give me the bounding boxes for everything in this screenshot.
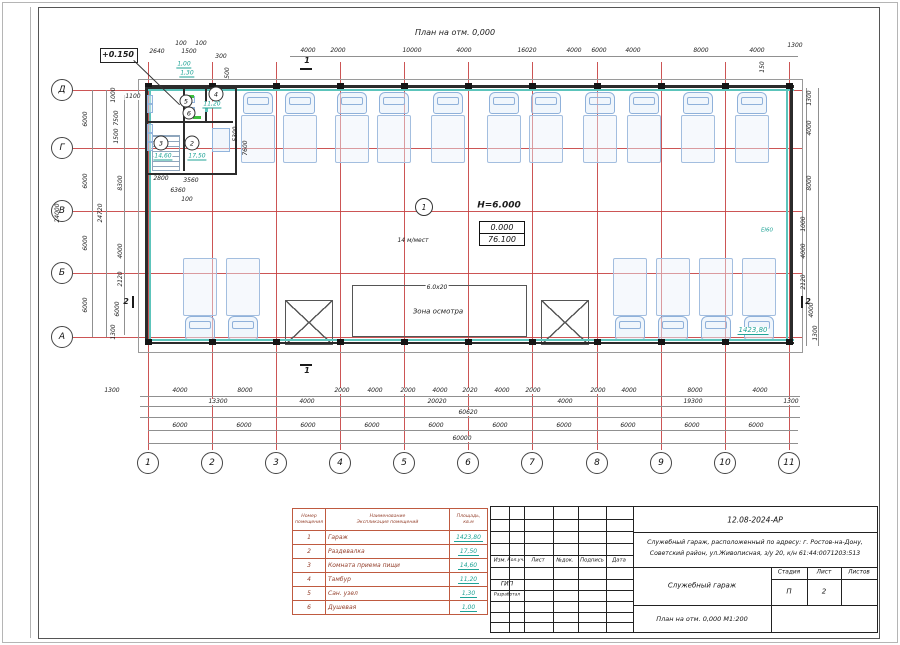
wall-accent <box>145 89 794 91</box>
room-num: 3 <box>293 559 326 573</box>
stamp-line <box>491 622 633 623</box>
truck-icon <box>486 92 522 163</box>
dim-label: 6000 <box>115 300 121 317</box>
room-area-value: 1,30 <box>460 590 477 598</box>
inspection-zone-size: 6.0х20 <box>426 285 449 291</box>
stamp-line <box>606 507 607 632</box>
section-mark-line <box>132 296 134 308</box>
table-row: 5Сан. узел1,30 <box>293 587 488 601</box>
dim-label: 4000 <box>556 399 573 405</box>
dim-label: 4000 <box>809 301 815 318</box>
dim-line <box>140 417 800 418</box>
stamp-line <box>491 590 633 591</box>
dim-label: 4000 <box>565 48 582 54</box>
column-marker <box>145 339 152 345</box>
column-marker <box>786 83 793 89</box>
room-area: 11,20 <box>202 102 221 109</box>
table-row: 6Душевая1,00 <box>293 601 488 615</box>
truck-icon <box>528 92 564 163</box>
dim-label: 2120 <box>801 273 807 290</box>
door-fire-tag: EI60 <box>760 228 774 234</box>
stamp-role-developer: Разработал <box>494 592 520 597</box>
truck-icon <box>334 92 370 163</box>
dim-label: 4000 <box>366 388 383 394</box>
dim-label: 6000 <box>555 423 572 429</box>
dim-label: 100 <box>180 197 193 203</box>
axis-row: А <box>51 326 73 348</box>
room-num: 6 <box>293 601 326 615</box>
dim-label: 2000 <box>333 388 350 394</box>
truck-icon <box>282 92 318 163</box>
column-marker <box>594 339 601 345</box>
dim-label: 6000 <box>171 423 188 429</box>
room-number: 5 <box>180 95 193 108</box>
dim-label: 10000 <box>401 48 422 54</box>
room-area: 17,50 <box>187 154 206 161</box>
column-marker <box>465 83 472 89</box>
dim-label: 60620 <box>457 410 478 416</box>
dim-label: 150 <box>760 60 766 73</box>
dim-label: 100 <box>174 41 187 47</box>
dim-label: 1000 <box>801 215 807 232</box>
dim-label: 4000 <box>118 242 124 259</box>
dim-label: 19300 <box>682 399 703 405</box>
locker <box>147 124 153 133</box>
axis-row: Д <box>51 79 73 101</box>
sheet-number: 2 <box>822 588 826 597</box>
column-marker <box>401 339 408 345</box>
axis-col: 8 <box>586 452 608 474</box>
dim-label: 4000 <box>624 48 641 54</box>
room-name: Гараж <box>326 531 450 545</box>
dim-label: 24000 <box>55 202 61 223</box>
dim-label: 4000 <box>299 48 316 54</box>
sheet-margin-line <box>30 7 31 638</box>
stamp-col-koluch: Кол.уч. <box>507 558 524 564</box>
column-marker <box>594 83 601 89</box>
axis-col: 10 <box>714 452 736 474</box>
room-number: 4 <box>209 87 224 102</box>
locker <box>147 142 153 151</box>
dim-label: 6000 <box>83 234 89 251</box>
stamp-line <box>524 507 525 632</box>
room-area: 1,00 <box>176 62 191 69</box>
axis-col: 6 <box>457 452 479 474</box>
axis-col: 11 <box>778 452 800 474</box>
room-area-cell: 17,50 <box>450 545 488 559</box>
stamp-line <box>771 579 877 580</box>
stamp-col-list: Лист <box>531 558 544 565</box>
dim-label: 1500 <box>114 127 120 144</box>
stamp-line <box>491 601 633 602</box>
axis-row: Г <box>51 137 73 159</box>
schedule-header-area: Площадь, кв.м <box>450 509 488 531</box>
schedule-header-area-line1: Площадь, <box>452 514 485 519</box>
stamp-line <box>578 507 579 632</box>
dim-label: 4000 <box>801 242 807 259</box>
schedule-header-name-line2: Экспликация помещений <box>328 520 447 525</box>
column-marker <box>209 339 216 345</box>
room-area-value: 11,20 <box>458 576 479 584</box>
dim-line <box>148 430 798 431</box>
section-mark-line <box>300 68 312 70</box>
dim-label: 6000 <box>299 423 316 429</box>
room-number: 1 <box>415 198 433 216</box>
dim-line <box>818 88 819 346</box>
dim-label: 60000 <box>451 436 472 442</box>
dim-label: 8000 <box>692 48 709 54</box>
truck-icon <box>612 257 648 340</box>
sheet-label: Лист <box>817 569 832 576</box>
column-marker <box>658 339 665 345</box>
truck-icon <box>582 92 618 163</box>
column-marker <box>337 83 344 89</box>
axis-col: 1 <box>137 452 159 474</box>
axis-col: 5 <box>393 452 415 474</box>
stamp-line <box>633 605 877 606</box>
stamp-line <box>633 532 877 533</box>
wall-accent <box>786 89 788 340</box>
dim-label: 1300 <box>807 89 813 106</box>
room-name: Сан. узел <box>326 587 450 601</box>
address-line1: Служебный гараж, расположенный по адресу… <box>647 539 863 547</box>
room-name: Тамбур <box>326 573 450 587</box>
dim-label: 6000 <box>491 423 508 429</box>
column-marker <box>273 339 280 345</box>
truck-icon <box>376 92 412 163</box>
dim-label: 5300 <box>233 125 239 142</box>
partition-wall <box>145 121 233 123</box>
locker <box>147 104 153 113</box>
dim-label: 4000 <box>431 388 448 394</box>
dim-label: 1300 <box>103 388 120 394</box>
stamp-line <box>509 507 510 632</box>
level-mark: +0.150 <box>102 51 134 59</box>
dim-label: 6000 <box>590 48 607 54</box>
room-num: 2 <box>293 545 326 559</box>
dim-label: 8000 <box>686 388 703 394</box>
room-number: 6 <box>183 107 196 120</box>
dim-label: 20020 <box>426 399 447 405</box>
dim-label: 6000 <box>619 423 636 429</box>
sheet-title: План на отм. 0,000 М1:200 <box>656 615 747 623</box>
axis-row: Б <box>51 262 73 284</box>
room-name: Комната приема пищи <box>326 559 450 573</box>
schedule-header-area-line2: кв.м <box>452 520 485 525</box>
room-area-cell: 1,30 <box>450 587 488 601</box>
address-line2: Советский район, ул.Живописная, з/у 20, … <box>650 550 861 558</box>
doc-code: 12.08-2024-АР <box>727 515 783 524</box>
inspection-zone-label: Зона осмотра <box>413 309 463 316</box>
dim-label: 1500 <box>180 49 197 55</box>
dim-label: 1100 <box>124 94 141 100</box>
table-furniture <box>212 128 230 152</box>
dim-label: 1300 <box>813 324 819 341</box>
column-marker <box>273 83 280 89</box>
capacity-label: 14 м/мест <box>397 238 428 244</box>
column-marker <box>529 339 536 345</box>
dim-label: 500 <box>225 66 231 79</box>
dim-label: 2640 <box>148 49 165 55</box>
stamp-line <box>553 507 554 632</box>
axis-col: 4 <box>329 452 351 474</box>
stamp-line <box>491 567 633 568</box>
level-top: 0.000 <box>480 222 524 234</box>
dim-label: 8000 <box>236 388 253 394</box>
room-area-value: 14,60 <box>458 562 479 570</box>
dim-label: 2120 <box>118 270 124 287</box>
dim-label: 4000 <box>298 399 315 405</box>
drawing-sheet: План на отм. 0,000 <box>0 0 900 645</box>
column-marker <box>529 83 536 89</box>
room-area-value: 1423,80 <box>454 534 483 542</box>
section-mark: 1 <box>304 367 310 375</box>
stamp-line <box>491 555 633 556</box>
room-area-value: 1,00 <box>460 604 477 612</box>
stamp-line <box>491 531 633 532</box>
dim-label: 6000 <box>363 423 380 429</box>
level-box: 0.000 76.100 <box>479 221 525 246</box>
dim-label: 4000 <box>620 388 637 394</box>
table-row: 3Комната приема пищи14,60 <box>293 559 488 573</box>
sheets-label: Листов <box>848 569 870 576</box>
stage-value: П <box>786 588 791 597</box>
room-name: Раздевалка <box>326 545 450 559</box>
dim-label: 2000 <box>589 388 606 394</box>
room-area-cell: 14,60 <box>450 559 488 573</box>
dim-line <box>92 90 93 337</box>
dim-label: 8000 <box>807 174 813 191</box>
stamp-col-data: Дата <box>612 558 626 565</box>
schedule-header-num: Номер помещения <box>293 509 326 531</box>
truck-icon <box>182 257 218 340</box>
column-marker <box>465 339 472 345</box>
table-row: 4Тамбур11,20 <box>293 573 488 587</box>
dim-label: 7500 <box>114 109 120 126</box>
axis-col: 3 <box>265 452 287 474</box>
dim-label: 1300 <box>782 399 799 405</box>
room-name: Душевая <box>326 601 450 615</box>
dim-label: 4000 <box>751 388 768 394</box>
truck-icon <box>430 92 466 163</box>
room-schedule-table: Номер помещения Наименование Экспликация… <box>292 508 488 615</box>
truck-icon <box>626 92 662 163</box>
locker <box>147 95 153 104</box>
wall-right <box>790 85 793 344</box>
room-area-cell: 1423,80 <box>450 531 488 545</box>
dim-label: 13300 <box>207 399 228 405</box>
dim-label: 16020 <box>516 48 537 54</box>
table-row: 2Раздевалка17,50 <box>293 545 488 559</box>
column-marker <box>786 339 793 345</box>
room-number: 3 <box>154 136 169 151</box>
dim-label: 3560 <box>182 178 199 184</box>
room-num: 4 <box>293 573 326 587</box>
dim-label: 2800 <box>152 176 169 182</box>
table-row: 1Гараж1423,80 <box>293 531 488 545</box>
height-label: Н=6.000 <box>477 202 521 211</box>
dim-label: 2000 <box>524 388 541 394</box>
dim-label: 4000 <box>748 48 765 54</box>
axis-col: 7 <box>521 452 543 474</box>
stamp-col-izm: Изм. <box>494 558 506 565</box>
stage-label: Стадия <box>778 569 800 576</box>
dim-label: 6360 <box>169 188 186 194</box>
stamp-line <box>807 567 808 605</box>
dim-label: 1300 <box>111 323 117 340</box>
dim-label: 4000 <box>171 388 188 394</box>
dim-label: 8300 <box>118 174 124 191</box>
room-area-cell: 11,20 <box>450 573 488 587</box>
dim-label: 2020 <box>461 388 478 394</box>
schedule-header-name: Наименование Экспликация помещений <box>326 509 450 531</box>
dim-label: 100 <box>194 41 207 47</box>
dim-label: 2000 <box>399 388 416 394</box>
dim-label: 6000 <box>747 423 764 429</box>
stamp-role-gip: ГИП <box>501 580 513 588</box>
section-mark: 2 <box>123 298 129 306</box>
stamp-line <box>491 519 633 520</box>
truck-icon <box>734 92 770 163</box>
dim-line <box>148 443 798 444</box>
room-area: 14,60 <box>153 154 172 161</box>
dim-label: 300 <box>214 54 227 60</box>
column-marker <box>722 83 729 89</box>
locker <box>147 133 153 142</box>
dim-label: 4000 <box>493 388 510 394</box>
column-marker <box>401 83 408 89</box>
truck-icon <box>225 257 261 340</box>
dim-label: 6000 <box>83 110 89 127</box>
level-bottom: 76.100 <box>480 234 524 245</box>
stamp-line <box>491 612 633 613</box>
dim-line <box>290 56 798 57</box>
axis-col: 2 <box>201 452 223 474</box>
stamp-col-ndok: №док. <box>556 558 573 565</box>
dim-line <box>106 90 107 337</box>
truck-icon <box>655 257 691 340</box>
stamp-col-podpis: Подпись <box>580 558 604 565</box>
dim-label: 6000 <box>683 423 700 429</box>
room-area-cell: 1,00 <box>450 601 488 615</box>
plan-title: План на отм. 0,000 <box>415 29 495 37</box>
column-marker <box>658 83 665 89</box>
room-num: 1 <box>293 531 326 545</box>
room-num: 5 <box>293 587 326 601</box>
column-marker <box>722 339 729 345</box>
project-name: Служебный гараж <box>668 582 736 591</box>
stamp-line <box>841 567 842 605</box>
truck-icon <box>698 257 734 340</box>
stamp-line <box>633 507 634 632</box>
garage-area: 1423,80 <box>738 327 769 335</box>
dim-label: 1000 <box>111 86 117 103</box>
title-block: 12.08-2024-АР Служебный гараж, расположе… <box>490 506 878 633</box>
dim-label: 6000 <box>83 172 89 189</box>
room-area-value: 17,50 <box>458 548 479 556</box>
stamp-line <box>491 543 633 544</box>
dim-line <box>140 396 800 397</box>
dim-label: 6000 <box>427 423 444 429</box>
dim-label: 4000 <box>807 119 813 136</box>
dim-label: 7600 <box>243 139 249 156</box>
truck-icon <box>680 92 716 163</box>
dim-label: 24720 <box>98 202 104 223</box>
dim-label: 2000 <box>329 48 346 54</box>
column-marker <box>337 339 344 345</box>
dim-label: 6000 <box>235 423 252 429</box>
dim-label: 6000 <box>83 296 89 313</box>
section-mark: 1 <box>304 57 310 65</box>
stamp-line <box>771 567 772 632</box>
axis-col: 9 <box>650 452 672 474</box>
section-mark-line <box>801 296 803 308</box>
dim-label: 1300 <box>786 43 803 49</box>
dim-label: 4000 <box>455 48 472 54</box>
dim-line <box>140 406 800 407</box>
room-number: 2 <box>185 136 200 151</box>
room-area: 1,30 <box>179 71 194 78</box>
